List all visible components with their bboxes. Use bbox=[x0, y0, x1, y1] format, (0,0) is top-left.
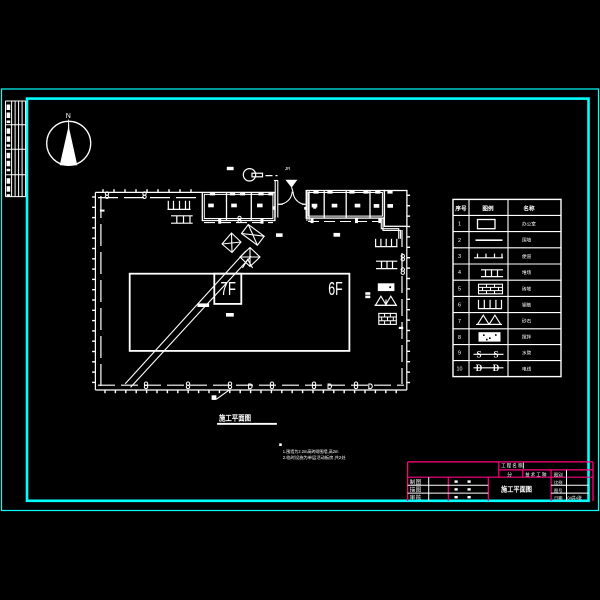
svg-text:6F: 6F bbox=[328, 279, 343, 299]
svg-text:2.临时设施为单层活动板房,共2处: 2.临时设施为单层活动板房,共2处 bbox=[283, 454, 346, 460]
svg-text:电线: 电线 bbox=[522, 366, 532, 372]
svg-text:D: D bbox=[476, 363, 483, 373]
svg-text:搅拌: 搅拌 bbox=[522, 334, 532, 341]
svg-text:S: S bbox=[476, 349, 481, 359]
svg-text:7: 7 bbox=[458, 319, 461, 325]
svg-text:4: 4 bbox=[458, 270, 461, 276]
svg-text:8: 8 bbox=[458, 335, 461, 341]
svg-text:9: 9 bbox=[458, 351, 461, 357]
svg-text:围墙: 围墙 bbox=[522, 237, 532, 244]
svg-text:名称: 名称 bbox=[523, 204, 535, 212]
svg-text:D: D bbox=[493, 363, 500, 373]
svg-text:分: 分 bbox=[507, 470, 512, 478]
svg-text:1: 1 bbox=[458, 222, 461, 228]
svg-text:施工平面图: 施工平面图 bbox=[501, 485, 532, 494]
svg-text:图例: 图例 bbox=[482, 204, 494, 212]
svg-text:10: 10 bbox=[457, 367, 463, 373]
svg-text:图别: 图别 bbox=[554, 471, 563, 478]
svg-text:堆场: 堆场 bbox=[522, 269, 532, 276]
svg-text:施工平面图: 施工平面图 bbox=[219, 413, 251, 423]
svg-text:工 程 名 称: 工 程 名 称 bbox=[501, 463, 522, 470]
svg-text:JR: JR bbox=[285, 166, 291, 171]
svg-text:6: 6 bbox=[458, 303, 461, 309]
svg-text:水管: 水管 bbox=[522, 350, 532, 357]
svg-text:制图: 制图 bbox=[410, 478, 422, 486]
svg-text:1.围墙为2.2m高砖砌围墙,高2m: 1.围墙为2.2m高砖砌围墙,高2m bbox=[283, 448, 339, 454]
svg-text:7F: 7F bbox=[221, 279, 237, 299]
svg-text:描图: 描图 bbox=[410, 486, 422, 494]
svg-text:2: 2 bbox=[458, 238, 461, 244]
svg-text:砂石: 砂石 bbox=[522, 318, 532, 325]
svg-text:3: 3 bbox=[458, 254, 461, 260]
svg-text:5: 5 bbox=[458, 286, 461, 292]
svg-text:办公室: 办公室 bbox=[522, 221, 536, 228]
svg-text:04共4张: 04共4张 bbox=[567, 495, 582, 502]
svg-text:审核: 审核 bbox=[410, 494, 422, 502]
svg-text:钢筋: 钢筋 bbox=[522, 302, 532, 309]
svg-text:砖堆: 砖堆 bbox=[522, 285, 532, 292]
svg-text:技 术 工 种: 技 术 工 种 bbox=[525, 471, 546, 478]
svg-text:N: N bbox=[66, 113, 71, 120]
svg-text:序号: 序号 bbox=[455, 204, 467, 212]
svg-text:便道: 便道 bbox=[522, 253, 532, 260]
svg-text:比例: 比例 bbox=[554, 479, 562, 486]
svg-text:S: S bbox=[493, 349, 498, 359]
